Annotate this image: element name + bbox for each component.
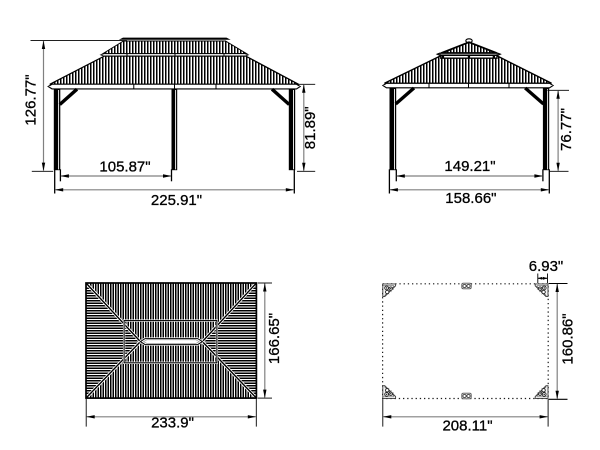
- svg-text:166.65": 166.65": [266, 313, 283, 364]
- svg-text:149.21": 149.21": [444, 158, 495, 175]
- svg-text:233.9": 233.9": [151, 415, 194, 432]
- svg-text:105.87": 105.87": [99, 158, 150, 175]
- svg-text:160.86": 160.86": [559, 313, 576, 364]
- svg-text:81.89": 81.89": [302, 106, 319, 149]
- svg-text:225.91": 225.91": [151, 192, 202, 209]
- svg-text:76.77": 76.77": [558, 108, 575, 151]
- svg-text:6.93": 6.93": [529, 258, 564, 275]
- svg-text:126.77": 126.77": [23, 74, 40, 125]
- svg-text:208.11": 208.11": [442, 417, 492, 434]
- svg-text:158.66": 158.66": [445, 190, 496, 207]
